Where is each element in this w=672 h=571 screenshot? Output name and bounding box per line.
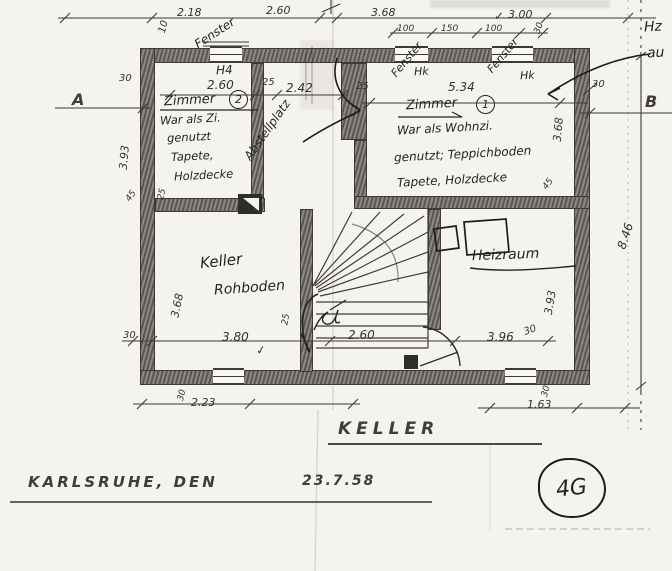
dimension-lines <box>55 0 672 430</box>
floor-plan-sheet: A B Hz au Fenster H4 Fenster Hk Fenster … <box>0 0 672 571</box>
section-marker-a: A <box>72 92 87 108</box>
drawing-date: 23.7.58 <box>302 474 375 488</box>
dim-242: 2.42 <box>286 82 313 94</box>
door-jamb-triangle <box>243 198 259 211</box>
dim-260-top: 2.60 <box>266 5 291 16</box>
dim-100a: 100 <box>397 25 414 34</box>
drawing-title: KELLER <box>338 421 439 438</box>
dim-368-top: 3.68 <box>371 7 396 18</box>
door-swing <box>420 327 460 366</box>
dim-100b: 100 <box>485 25 502 34</box>
dim-30-wall-left: 30 <box>119 74 132 84</box>
room-heizraum-name: Heizraum <box>472 247 540 263</box>
checkmark-bottom: ✓ <box>255 343 267 357</box>
dim-393-left: 3.93 <box>118 145 131 170</box>
corner-note-line2: au <box>647 46 665 61</box>
dim-260-room2: 2.60 <box>207 79 234 91</box>
dim-396: 3.96 <box>487 331 514 343</box>
hk-label-mid: Hk <box>414 66 429 78</box>
room-zimmer2-note1: War als Zi. <box>160 112 221 127</box>
city-date-label: KARLSRUHE, DEN <box>28 475 218 490</box>
dim-30-bottom-left: 30 <box>123 331 136 341</box>
dim-30-wall-right: 30 <box>592 80 605 90</box>
dim-25b: 25 <box>356 82 369 92</box>
room-zimmer2-note2: genutzt <box>167 131 212 145</box>
dim-223: 2.23 <box>191 397 216 408</box>
section-marker-b: B <box>645 94 660 110</box>
dim-150: 150 <box>441 25 458 34</box>
room-zimmer2-name: Zimmer <box>164 93 216 109</box>
dim-300: 3.00 <box>508 9 533 20</box>
dim-368-right: 3.68 <box>552 117 565 142</box>
room-zimmer1-name: Zimmer <box>406 97 458 113</box>
dim-380: 3.80 <box>222 331 249 343</box>
checkmark-top: ✓ <box>494 10 504 22</box>
room-zimmer2-note4: Holzdecke <box>174 168 234 183</box>
dim-163: 1.63 <box>527 399 552 410</box>
room-keller-name: Keller <box>199 252 243 271</box>
dim-260-stair: 2.60 <box>348 329 375 341</box>
dim-218: 2.18 <box>177 7 202 18</box>
room-zimmer2-note3: Tapete, <box>171 150 214 164</box>
dim-534: 5.34 <box>448 81 475 93</box>
h4-label-left: H4 <box>216 64 233 77</box>
hk-label-right: Hk <box>520 70 535 82</box>
dim-25a: 25 <box>262 78 275 88</box>
corner-note-line1: Hz <box>644 20 663 35</box>
